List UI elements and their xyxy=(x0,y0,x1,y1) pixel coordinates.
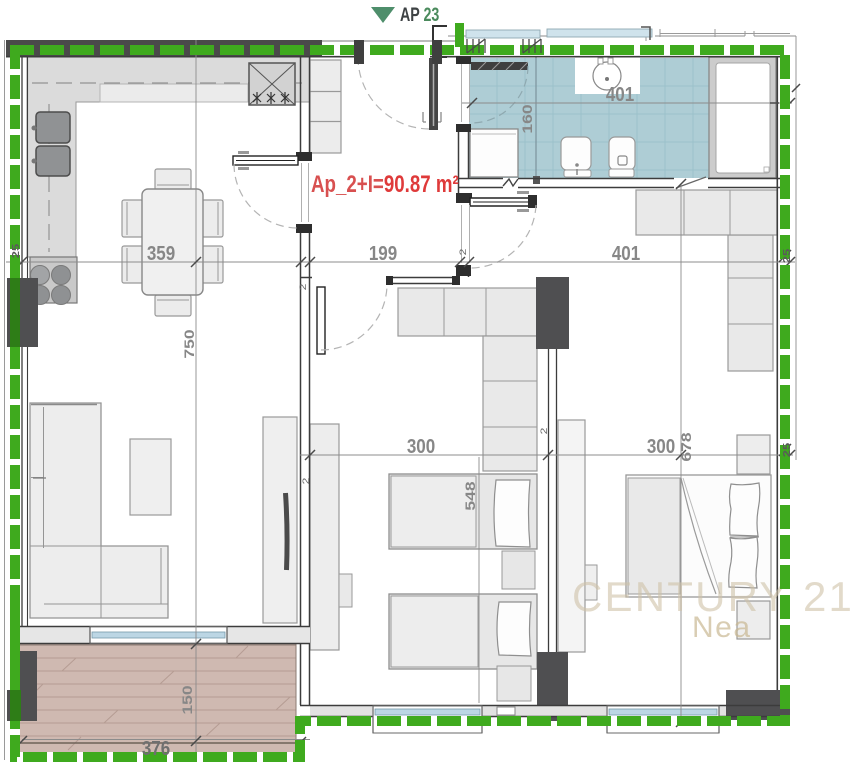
svg-text:Nea: Nea xyxy=(692,611,752,644)
svg-text:401: 401 xyxy=(612,242,640,265)
svg-text:25: 25 xyxy=(781,442,792,457)
svg-text:401: 401 xyxy=(606,83,634,106)
svg-text:25: 25 xyxy=(10,243,21,258)
svg-text:2: 2 xyxy=(458,249,469,256)
svg-text:150: 150 xyxy=(181,685,196,714)
svg-text:Ap_2+I=90.87 m²: Ap_2+I=90.87 m² xyxy=(311,171,459,198)
svg-text:300: 300 xyxy=(647,435,675,458)
svg-text:300: 300 xyxy=(407,435,435,458)
svg-text:AP 23: AP 23 xyxy=(400,4,439,25)
svg-text:376: 376 xyxy=(142,737,170,760)
svg-text:2: 2 xyxy=(301,478,312,485)
svg-text:25: 25 xyxy=(781,248,792,263)
svg-text:359: 359 xyxy=(147,242,175,265)
svg-text:548: 548 xyxy=(464,481,479,510)
svg-text:2: 2 xyxy=(539,428,550,435)
svg-text:678: 678 xyxy=(680,432,695,461)
svg-text:2: 2 xyxy=(298,284,309,291)
svg-text:750: 750 xyxy=(183,329,198,358)
svg-text:199: 199 xyxy=(369,242,397,265)
svg-text:160: 160 xyxy=(521,104,536,133)
